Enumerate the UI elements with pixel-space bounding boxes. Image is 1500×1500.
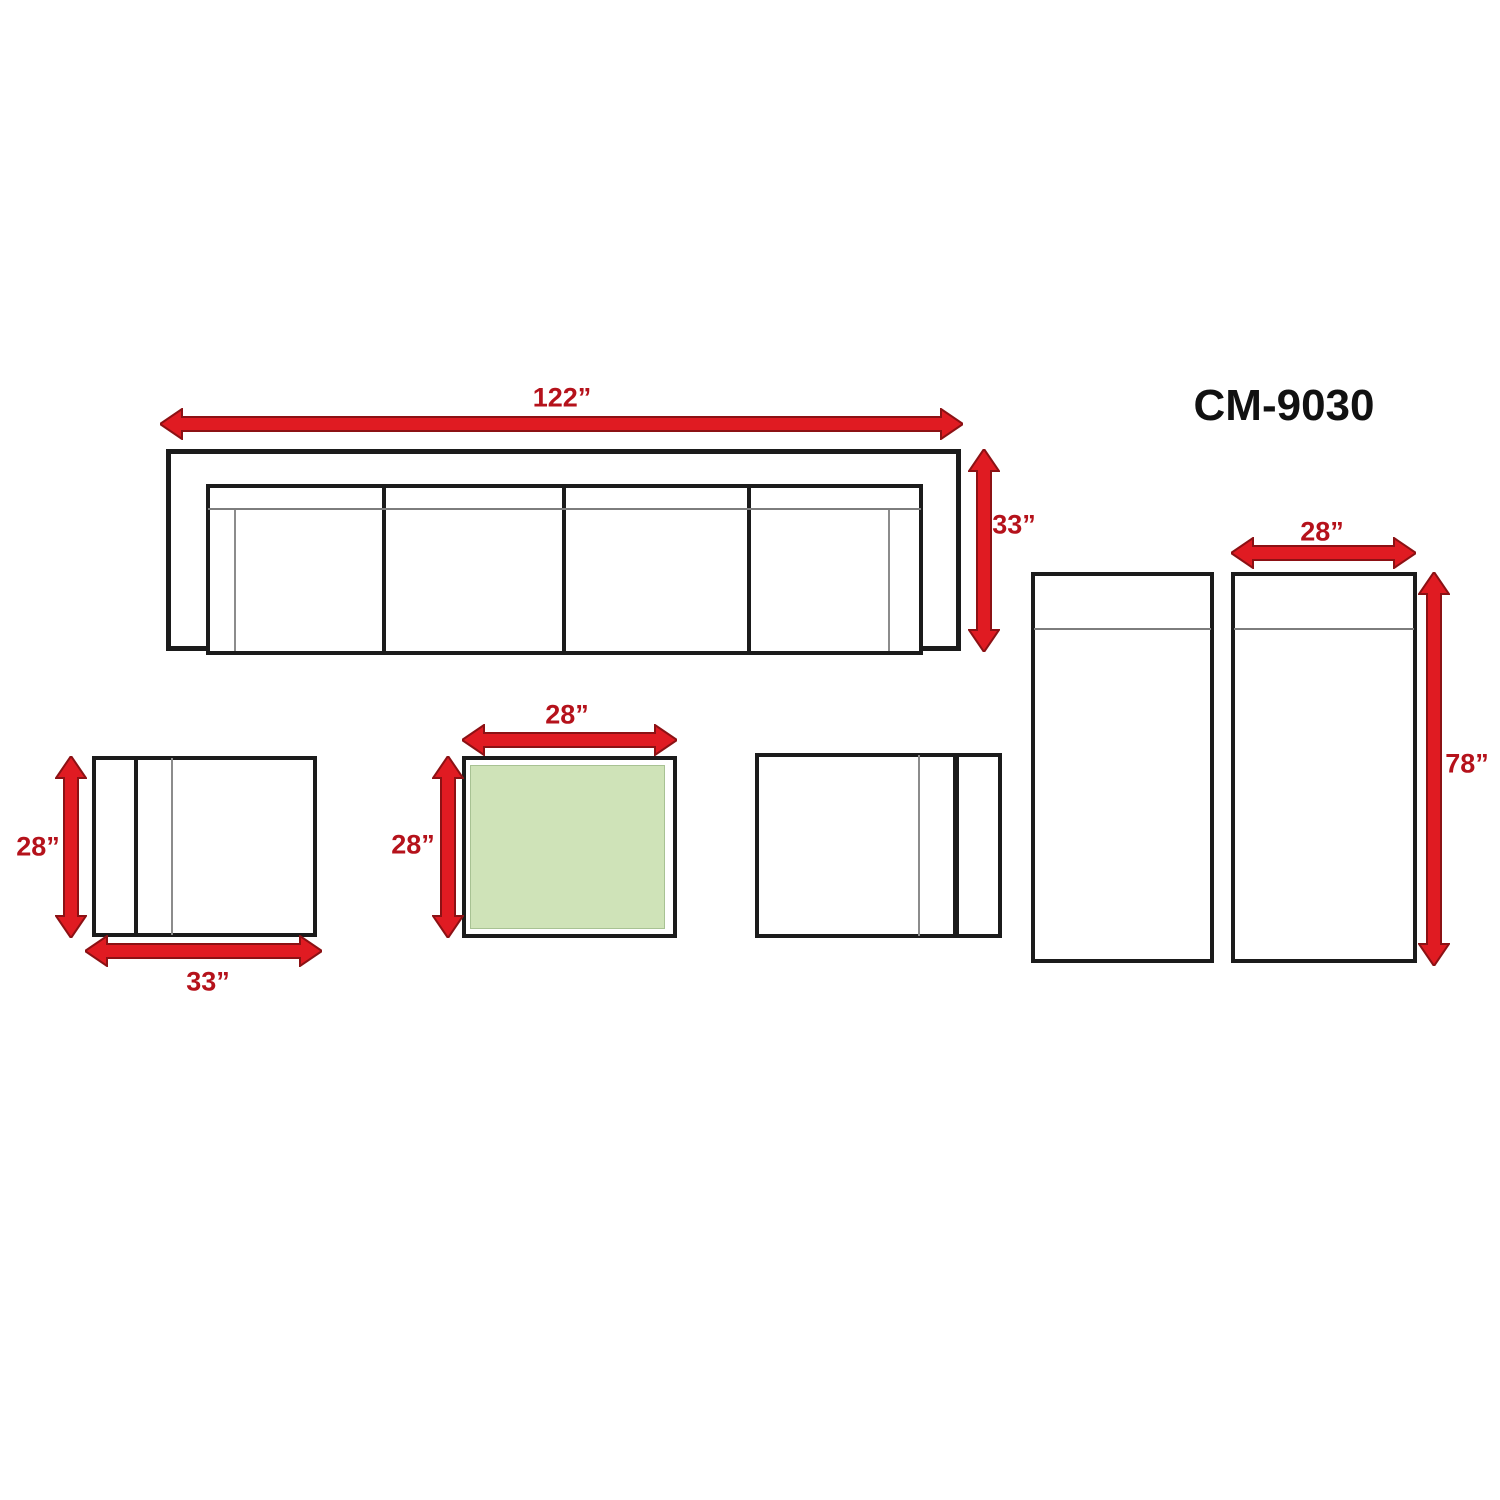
sofa-left-arm-line bbox=[234, 510, 236, 651]
right-chair-armrest-outline bbox=[955, 753, 1002, 938]
sofa-width-label: 122” bbox=[533, 385, 592, 412]
sofa-depth-label: 33” bbox=[992, 512, 1036, 539]
right-chair-seat-outline bbox=[755, 753, 957, 938]
sofa-depth-arrow bbox=[968, 449, 1000, 652]
chaise-lounge-2-outline bbox=[1231, 572, 1417, 963]
model-number-title: CM-9030 bbox=[1194, 384, 1375, 428]
coffee-table-depth-arrow bbox=[432, 756, 464, 938]
left-chair-depth-label: 28” bbox=[16, 834, 60, 861]
right-chair-cushion-line bbox=[918, 755, 920, 936]
left-chair-armrest-line bbox=[134, 758, 138, 935]
chaise-lounge-2-headrest-line bbox=[1234, 628, 1414, 630]
chaise-width-label: 28” bbox=[1300, 519, 1344, 546]
sofa-back-cushion-line bbox=[208, 508, 921, 510]
chaise-length-label: 78” bbox=[1445, 751, 1489, 778]
coffee-table-width-label: 28” bbox=[545, 702, 589, 729]
left-chair-outline bbox=[92, 756, 317, 937]
sofa-right-arm-line bbox=[888, 510, 890, 651]
furniture-dimension-diagram: 122” 33” CM-9030 28” 33” 28” 28” 28” bbox=[0, 0, 1500, 1500]
coffee-table-glass-top bbox=[470, 765, 665, 929]
left-chair-depth-arrow bbox=[55, 756, 87, 938]
left-chair-width-label: 33” bbox=[186, 969, 230, 996]
left-chair-width-arrow bbox=[85, 935, 322, 967]
coffee-table-depth-label: 28” bbox=[391, 832, 435, 859]
sofa-width-arrow bbox=[160, 408, 963, 440]
chaise-lounge-1-outline bbox=[1031, 572, 1214, 963]
chaise-lounge-1-headrest-line bbox=[1034, 628, 1211, 630]
left-chair-cushion-line bbox=[171, 758, 173, 935]
